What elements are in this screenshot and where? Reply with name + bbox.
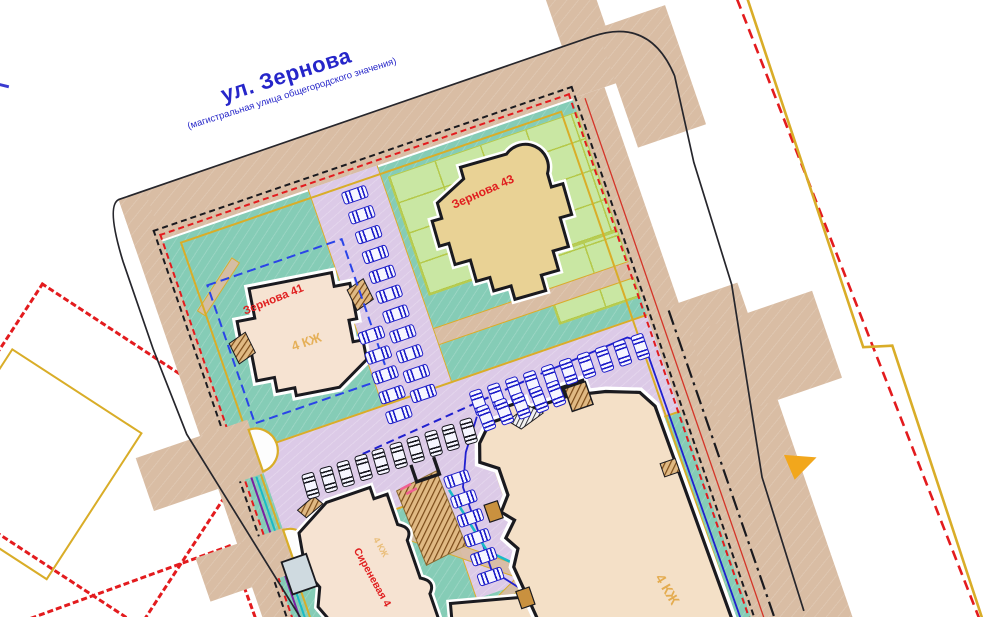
site-plan: Зернова 41 4 КЖ Зернова 43 bbox=[0, 0, 1000, 617]
district-boundary-yellow bbox=[742, 0, 991, 617]
building-zernova-43 bbox=[419, 136, 590, 315]
district-boundary-red-dashed bbox=[737, 0, 985, 617]
direction-arrow bbox=[784, 445, 821, 480]
site-plan-canvas: Зернова 41 4 КЖ Зернова 43 bbox=[0, 0, 1000, 617]
curb-arc-west-1 bbox=[249, 423, 284, 472]
plan-linework: Зернова 41 4 КЖ Зернова 43 bbox=[0, 0, 1000, 617]
